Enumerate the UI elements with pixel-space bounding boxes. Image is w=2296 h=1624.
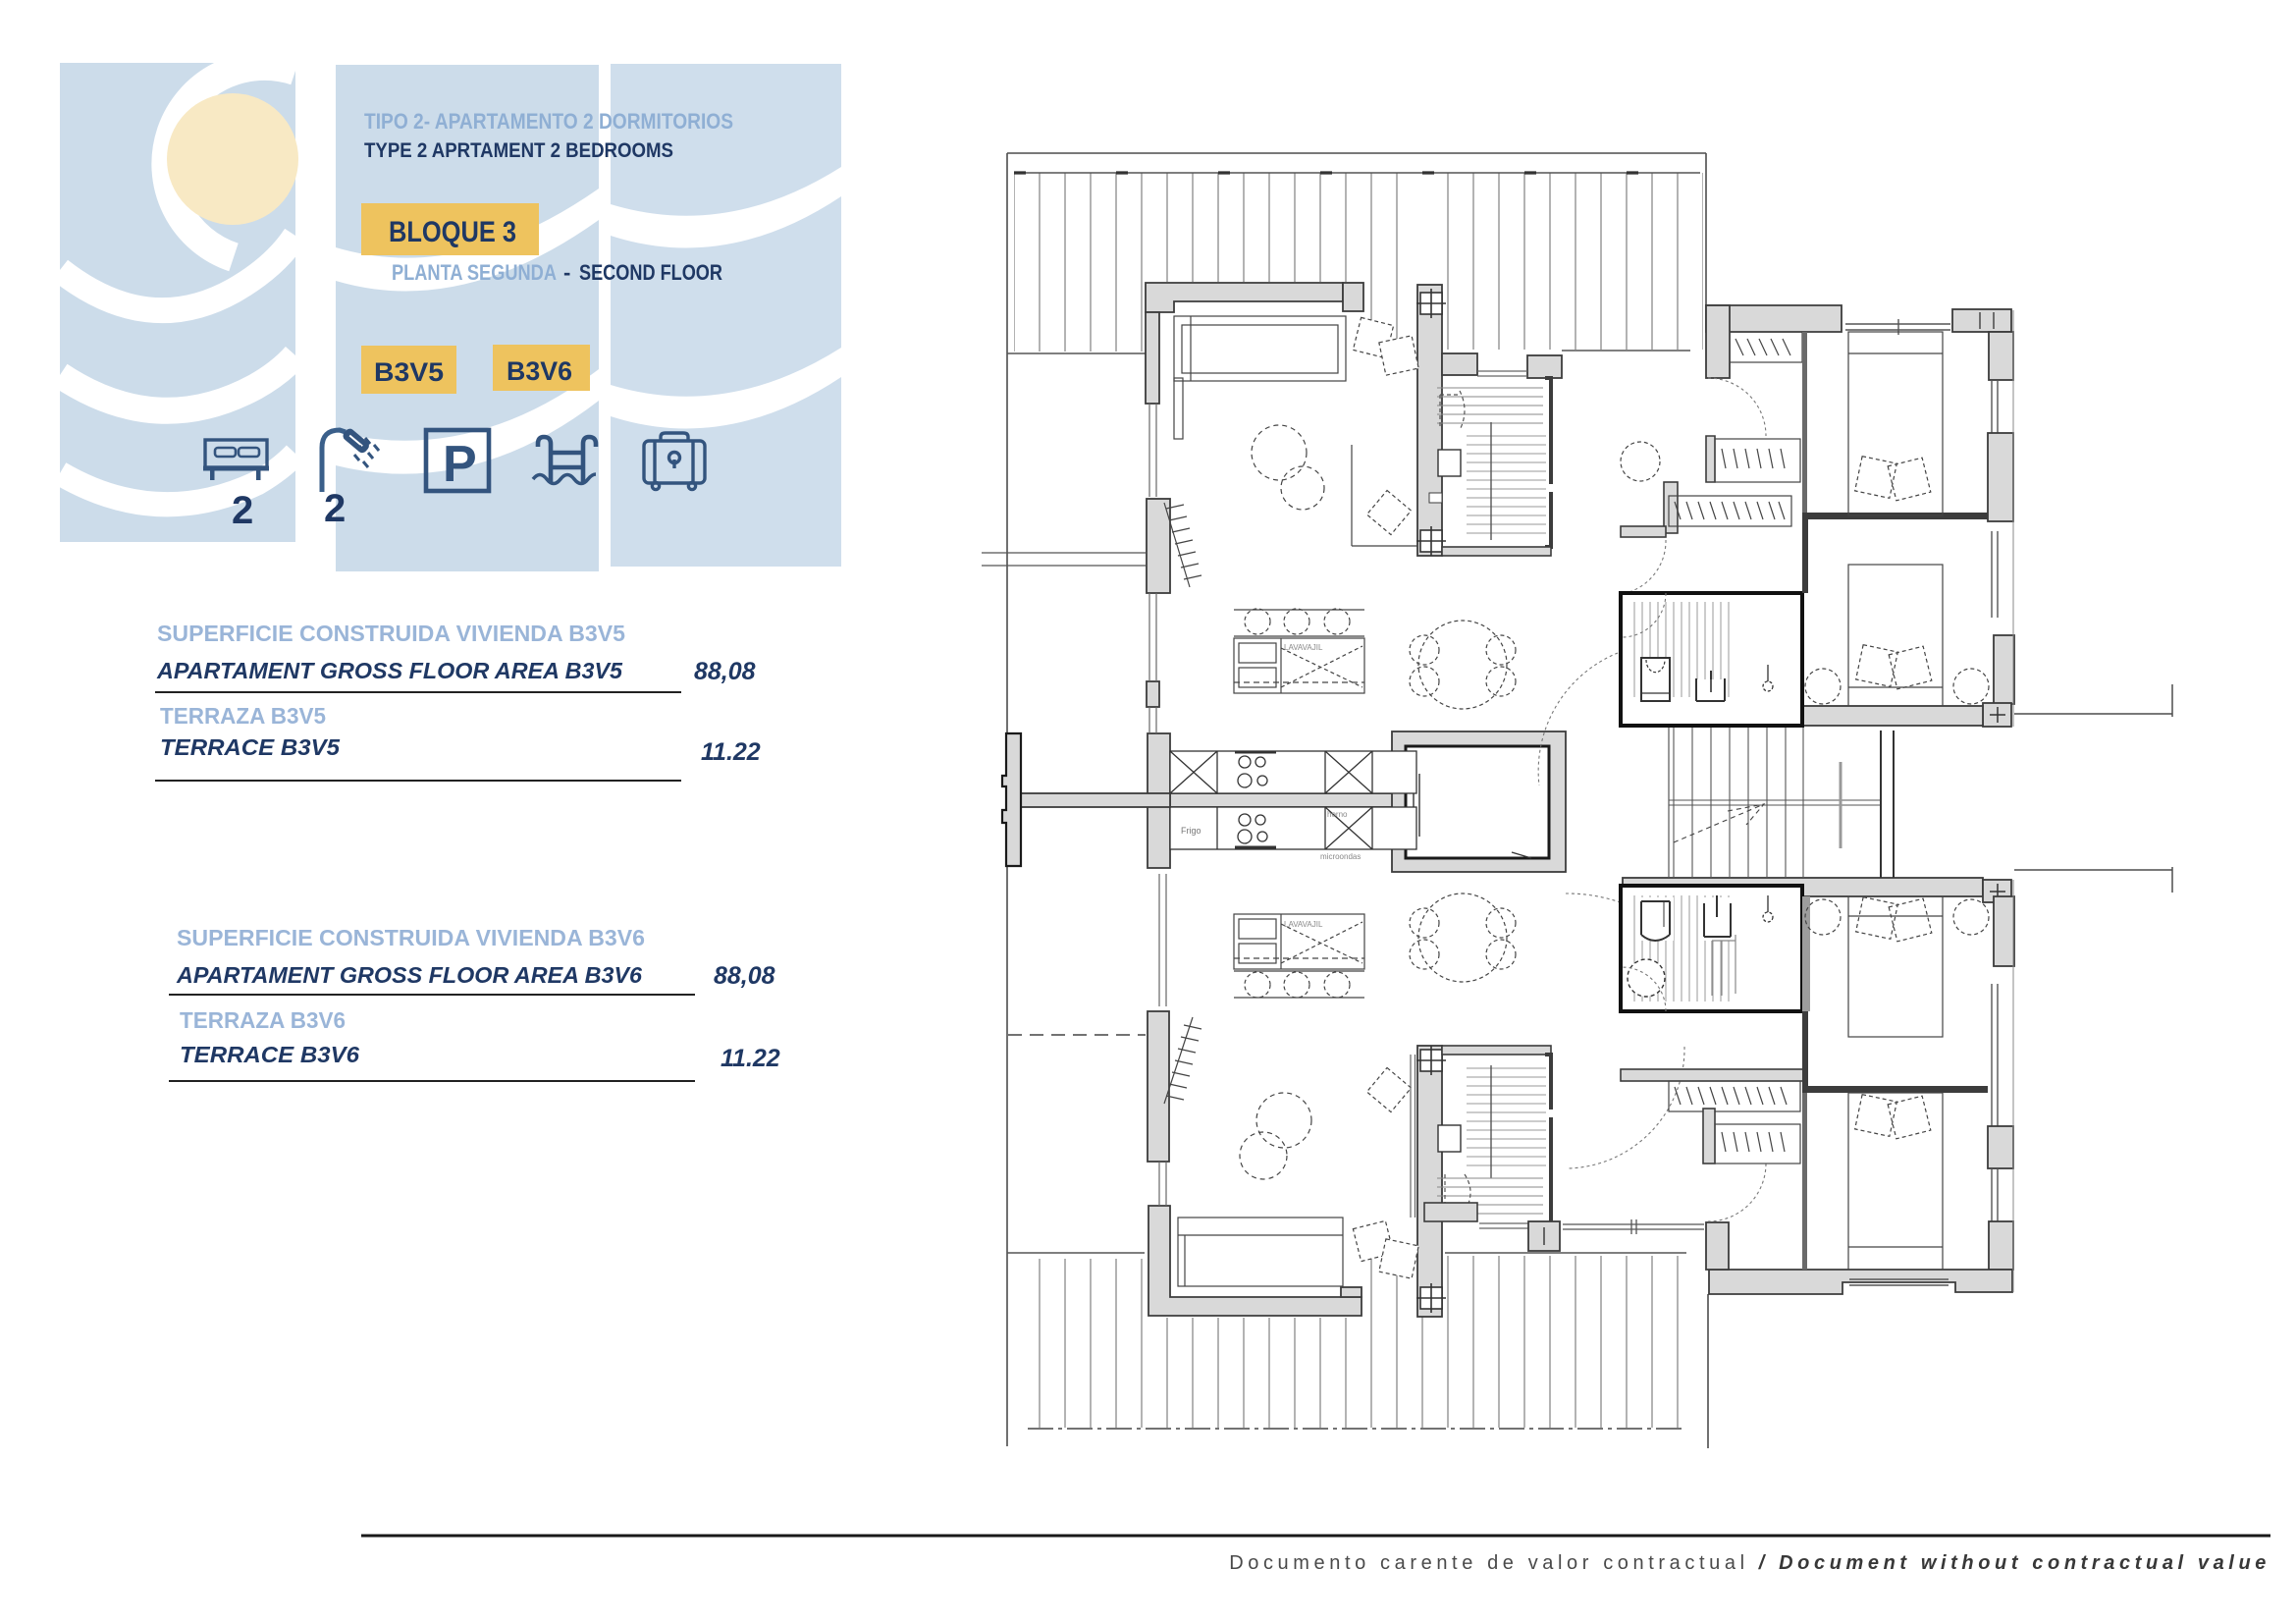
svg-text:PLANTA SEGUNDA: PLANTA SEGUNDA — [392, 260, 557, 285]
svg-text:TERRAZA B3V5: TERRAZA B3V5 — [160, 703, 326, 729]
svg-text:TERRACE B3V5: TERRACE B3V5 — [160, 734, 341, 760]
svg-text:APARTAMENT GROSS FLOOR AREA B3: APARTAMENT GROSS FLOOR AREA B3V6 — [176, 962, 642, 988]
svg-text:TERRACE B3V6: TERRACE B3V6 — [180, 1042, 359, 1067]
svg-text:2: 2 — [324, 487, 346, 530]
svg-text:11.22: 11.22 — [701, 738, 761, 766]
svg-text:BLOQUE 3: BLOQUE 3 — [389, 216, 516, 248]
svg-text:B3V5: B3V5 — [374, 357, 444, 387]
svg-text:microondas: microondas — [1320, 852, 1361, 861]
svg-text:Frigo: Frigo — [1181, 826, 1201, 836]
svg-text:APARTAMENT GROSS FLOOR AREA B3: APARTAMENT GROSS FLOOR AREA B3V5 — [156, 658, 623, 683]
svg-text:SECOND FLOOR: SECOND FLOOR — [579, 260, 722, 285]
svg-text:Documento carente de valor con: Documento carente de valor contractual /… — [1229, 1552, 2270, 1574]
svg-text:LAVAVAJIL: LAVAVAJIL — [1284, 920, 1323, 929]
svg-text:TIPO 2- APARTAMENTO 2 DORMITOR: TIPO 2- APARTAMENTO 2 DORMITORIOS — [364, 109, 733, 134]
svg-text:-: - — [563, 260, 570, 285]
svg-text:horno: horno — [1327, 810, 1348, 819]
svg-text:88,08: 88,08 — [714, 962, 775, 990]
svg-text:TYPE 2 APRTAMENT 2 BEDROOMS: TYPE 2 APRTAMENT 2 BEDROOMS — [364, 139, 673, 162]
svg-text:LAVAVAJIL: LAVAVAJIL — [1284, 643, 1323, 652]
svg-text:SUPERFICIE CONSTRUIDA VIVIENDA: SUPERFICIE CONSTRUIDA VIVIENDA B3V6 — [177, 925, 645, 950]
svg-text:B3V6: B3V6 — [507, 356, 572, 386]
svg-text:2: 2 — [232, 489, 253, 532]
svg-text:P: P — [443, 436, 477, 493]
svg-text:TERRAZA B3V6: TERRAZA B3V6 — [180, 1007, 346, 1033]
svg-text:88,08: 88,08 — [694, 658, 756, 685]
svg-text:11.22: 11.22 — [721, 1045, 780, 1072]
svg-text:SUPERFICIE CONSTRUIDA VIVIENDA: SUPERFICIE CONSTRUIDA VIVIENDA B3V5 — [157, 621, 625, 646]
